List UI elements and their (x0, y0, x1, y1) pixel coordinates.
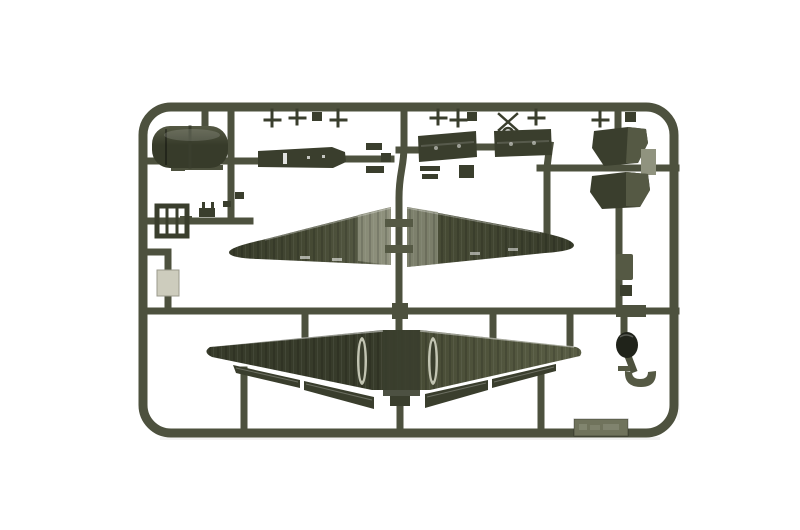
bulkhead-part-lower (590, 172, 650, 209)
photo-stage (0, 0, 800, 530)
small-square-part (620, 285, 632, 296)
small-box-part (616, 254, 633, 280)
embossed-label-tab (574, 419, 628, 436)
wheel-disc-part (616, 332, 638, 358)
upper-wing-left-part (229, 207, 391, 265)
clear-insert-part (157, 270, 179, 296)
cowl-ring-part (618, 366, 656, 387)
engine-cowling-part (152, 126, 228, 168)
cargo-door-part-left (418, 131, 477, 162)
cabin-floor-part (258, 147, 346, 168)
lower-wing-part (206, 330, 581, 406)
pi-fitting-part (199, 192, 244, 217)
sprue-illustration (0, 0, 800, 530)
